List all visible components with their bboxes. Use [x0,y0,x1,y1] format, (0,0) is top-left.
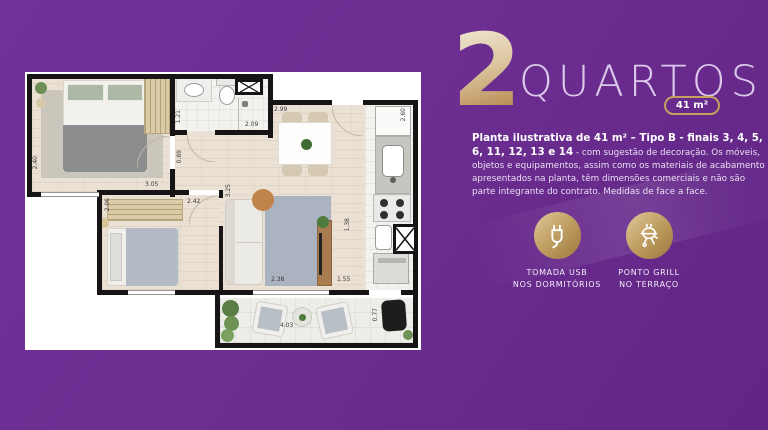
bedroom2-window [128,290,175,295]
floor-plan: 2.40 1.21 2.09 2.99 2.60 0.89 3.05 2.42 … [25,72,421,350]
dim-label: 1.38 [345,218,351,231]
dim-label: 0.77 [373,308,379,321]
terrace-table-plant [299,314,306,321]
dining-table [278,122,332,165]
terrace-plant [403,330,413,340]
dim-label: 3.05 [145,182,158,188]
bedroom1-window [41,192,99,197]
terrace-sliding-door [253,290,329,295]
dim-label: 2.60 [401,108,407,121]
duct-shaft [393,224,417,254]
grill [381,299,407,332]
terrace-plant [222,300,239,317]
terrace-armchair [315,301,354,340]
duct-shaft [235,79,263,95]
wardrobe [144,78,170,134]
bathroom-door-arc [187,134,215,162]
sink-bowl [184,83,204,97]
x-mark-icon [396,227,414,251]
burner [396,211,404,219]
wall [219,226,223,292]
side-table [252,189,274,211]
nightstand [36,98,46,108]
dim-label: 3.25 [226,184,232,197]
bed-blanket [63,125,147,172]
area-badge: 41 m² [664,96,720,115]
entry-door-arc [332,105,363,136]
kitchen-sink [382,145,404,177]
feature-label-line2: NO TERRAÇO [594,279,704,291]
kitchen-counter [375,136,411,194]
wall [268,74,273,138]
title-word: QUARTOS [519,57,763,107]
burner [396,199,404,207]
feature-circle [626,212,673,259]
dim-label: 2.40 [33,156,39,169]
dim-label: 2.99 [274,107,287,113]
tv [319,233,322,275]
dim-label: 2.42 [187,199,200,205]
entry-door-opening [332,100,363,105]
burner [380,211,388,219]
terrace-armchair [251,300,288,337]
shower-glass [238,98,239,130]
laundry-tank [375,225,392,250]
wall [215,294,220,348]
feature-grill: PONTO GRILL NO TERRAÇO [594,212,704,290]
bathroom-sink [176,78,212,102]
armchair-cushion [257,306,282,331]
usb-plug-icon [543,222,571,250]
toilet [219,86,235,105]
double-bed [63,80,147,172]
shower-head [242,101,248,107]
single-bed [107,228,179,286]
wall [170,74,175,136]
washer [373,253,409,284]
dim-label: 2.06 [105,198,111,211]
cooktop [373,194,411,222]
dim-label: 0.89 [177,150,183,163]
wall [215,343,418,348]
plant [35,82,47,94]
rack-plant [317,216,329,228]
bedroom1-door-arc [137,136,170,169]
pillow [110,233,122,281]
dim-label: 1.21 [176,110,182,123]
wall [27,74,32,197]
table-plant [301,139,312,150]
terrace-table [292,307,312,327]
bedroom2-door-opening [189,190,219,195]
plan-description: Planta ilustrativa de 41 m² – Tipo B - f… [472,132,768,199]
sofa [225,199,263,285]
grill-icon [635,222,663,250]
wall [97,190,102,295]
feature-label-line1: PONTO GRILL [594,267,704,279]
faucet [390,177,396,183]
dim-label: 2.38 [271,277,284,283]
x-mark-icon [238,82,260,92]
wardrobe-2 [107,199,183,221]
marketing-slide: 2.40 1.21 2.09 2.99 2.60 0.89 3.05 2.42 … [0,0,768,430]
wall [175,130,187,135]
title-number: 2 [452,26,522,116]
burner [380,199,388,207]
wall [219,190,223,198]
sofa-cushion-split [236,242,262,243]
dim-label: 2.09 [245,122,258,128]
sofa-back [226,200,235,284]
feature-circle [534,212,581,259]
dim-label: 4.03 [280,323,293,329]
terrace-plant [221,329,234,342]
pillow [67,84,104,101]
service-terrace-opening [369,290,401,295]
tv-rack [317,220,332,286]
pillow [107,84,143,101]
washer-panel [378,258,406,263]
armchair-cushion [321,307,348,334]
feature-label: PONTO GRILL NO TERRAÇO [594,267,704,290]
dim-label: 1.55 [337,277,350,283]
wall [215,130,270,135]
bed2-blanket [126,228,178,286]
